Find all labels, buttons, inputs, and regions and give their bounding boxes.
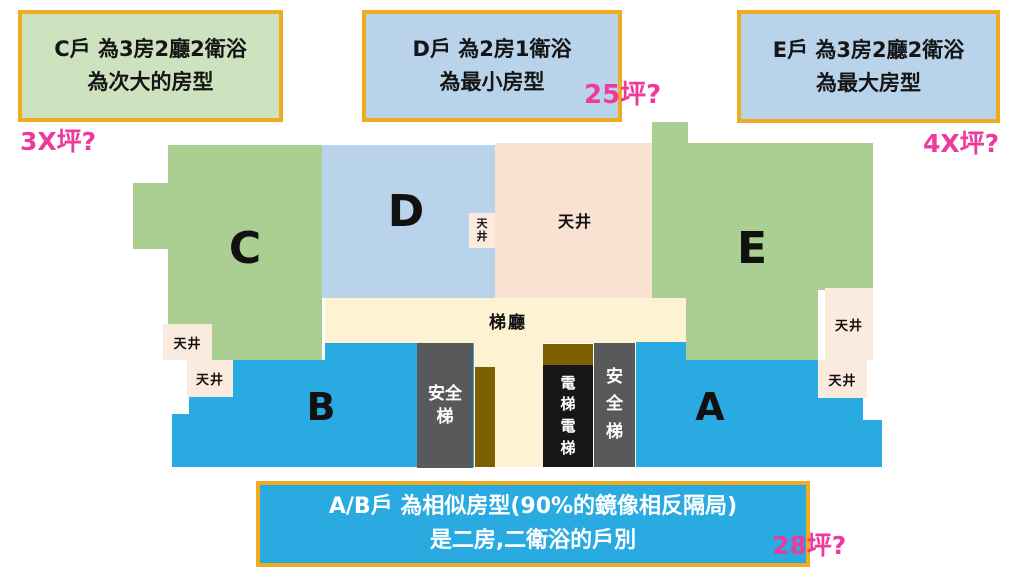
lightwell-central-label: 天井 [540, 208, 610, 232]
unit-e-region-lower [685, 290, 818, 360]
unit-e-region-col [652, 122, 688, 298]
unit-a-region [636, 342, 686, 467]
lightwell-b-upper: 天井 [163, 324, 212, 360]
callout-unit-c-line2: 為次大的房型 [88, 66, 214, 99]
stair-left: 安全 梯 [417, 343, 473, 468]
callout-unit-e-line2: 為最大房型 [816, 67, 921, 100]
callout-unit-d: D戶 為2房1衛浴 為最小房型 [362, 10, 622, 122]
shaft-left [475, 367, 495, 467]
unit-c-region-notch [133, 183, 168, 249]
unit-a-label: A [684, 383, 736, 431]
callout-unit-ab-line2: 是二房,二衛浴的戶別 [430, 524, 636, 558]
note-unit-d-size: 25坪? [584, 74, 661, 111]
unit-e-label: E [722, 222, 782, 274]
unit-c-label: C [210, 222, 280, 274]
unit-d-label: D [376, 185, 436, 237]
lightwell-d: 天 井 [469, 213, 495, 248]
lightwell-e-lower: 天井 [818, 360, 867, 398]
callout-unit-c: C戶 為3房2廳2衛浴 為次大的房型 [18, 10, 283, 122]
unit-b-region-4 [172, 414, 189, 467]
callout-unit-c-line1: C戶 為3房2廳2衛浴 [54, 33, 247, 66]
floorplan-diagram: C D 天 井 天井 E 天井 天井 梯廳 B 天井 天井 A 安全 梯 電 梯… [0, 0, 1024, 576]
lightwell-e-upper: 天井 [825, 288, 873, 360]
callout-unit-ab-line1: A/B戶 為相似房型(90%的鏡像相反隔局) [329, 490, 737, 524]
callout-unit-d-line1: D戶 為2房1衛浴 [413, 33, 572, 66]
unit-a-region-3 [818, 398, 863, 467]
note-unit-e-size: 4X坪? [923, 124, 999, 160]
stair-right: 安 全 梯 [594, 343, 635, 467]
callout-unit-e-line1: E戶 為3房2廳2衛浴 [773, 34, 965, 67]
unit-b-region-3 [189, 397, 233, 467]
shaft-elevator-top [543, 344, 593, 365]
unit-c-region-lower [212, 324, 322, 360]
unit-a-region-4 [863, 420, 882, 467]
hall-label: 梯廳 [478, 308, 538, 332]
lightwell-b-lower: 天井 [187, 360, 233, 397]
unit-b-label: B [295, 383, 347, 431]
elevator-core: 電 梯 電 梯 [543, 365, 593, 467]
callout-unit-ab: A/B戶 為相似房型(90%的鏡像相反隔局) 是二房,二衛浴的戶別 [256, 481, 810, 567]
note-unit-ab-size: 28坪? [772, 526, 846, 562]
note-unit-c-size: 3X坪? [20, 122, 96, 158]
callout-unit-d-line2: 為最小房型 [440, 66, 545, 99]
callout-unit-e: E戶 為3房2廳2衛浴 為最大房型 [737, 10, 1000, 123]
